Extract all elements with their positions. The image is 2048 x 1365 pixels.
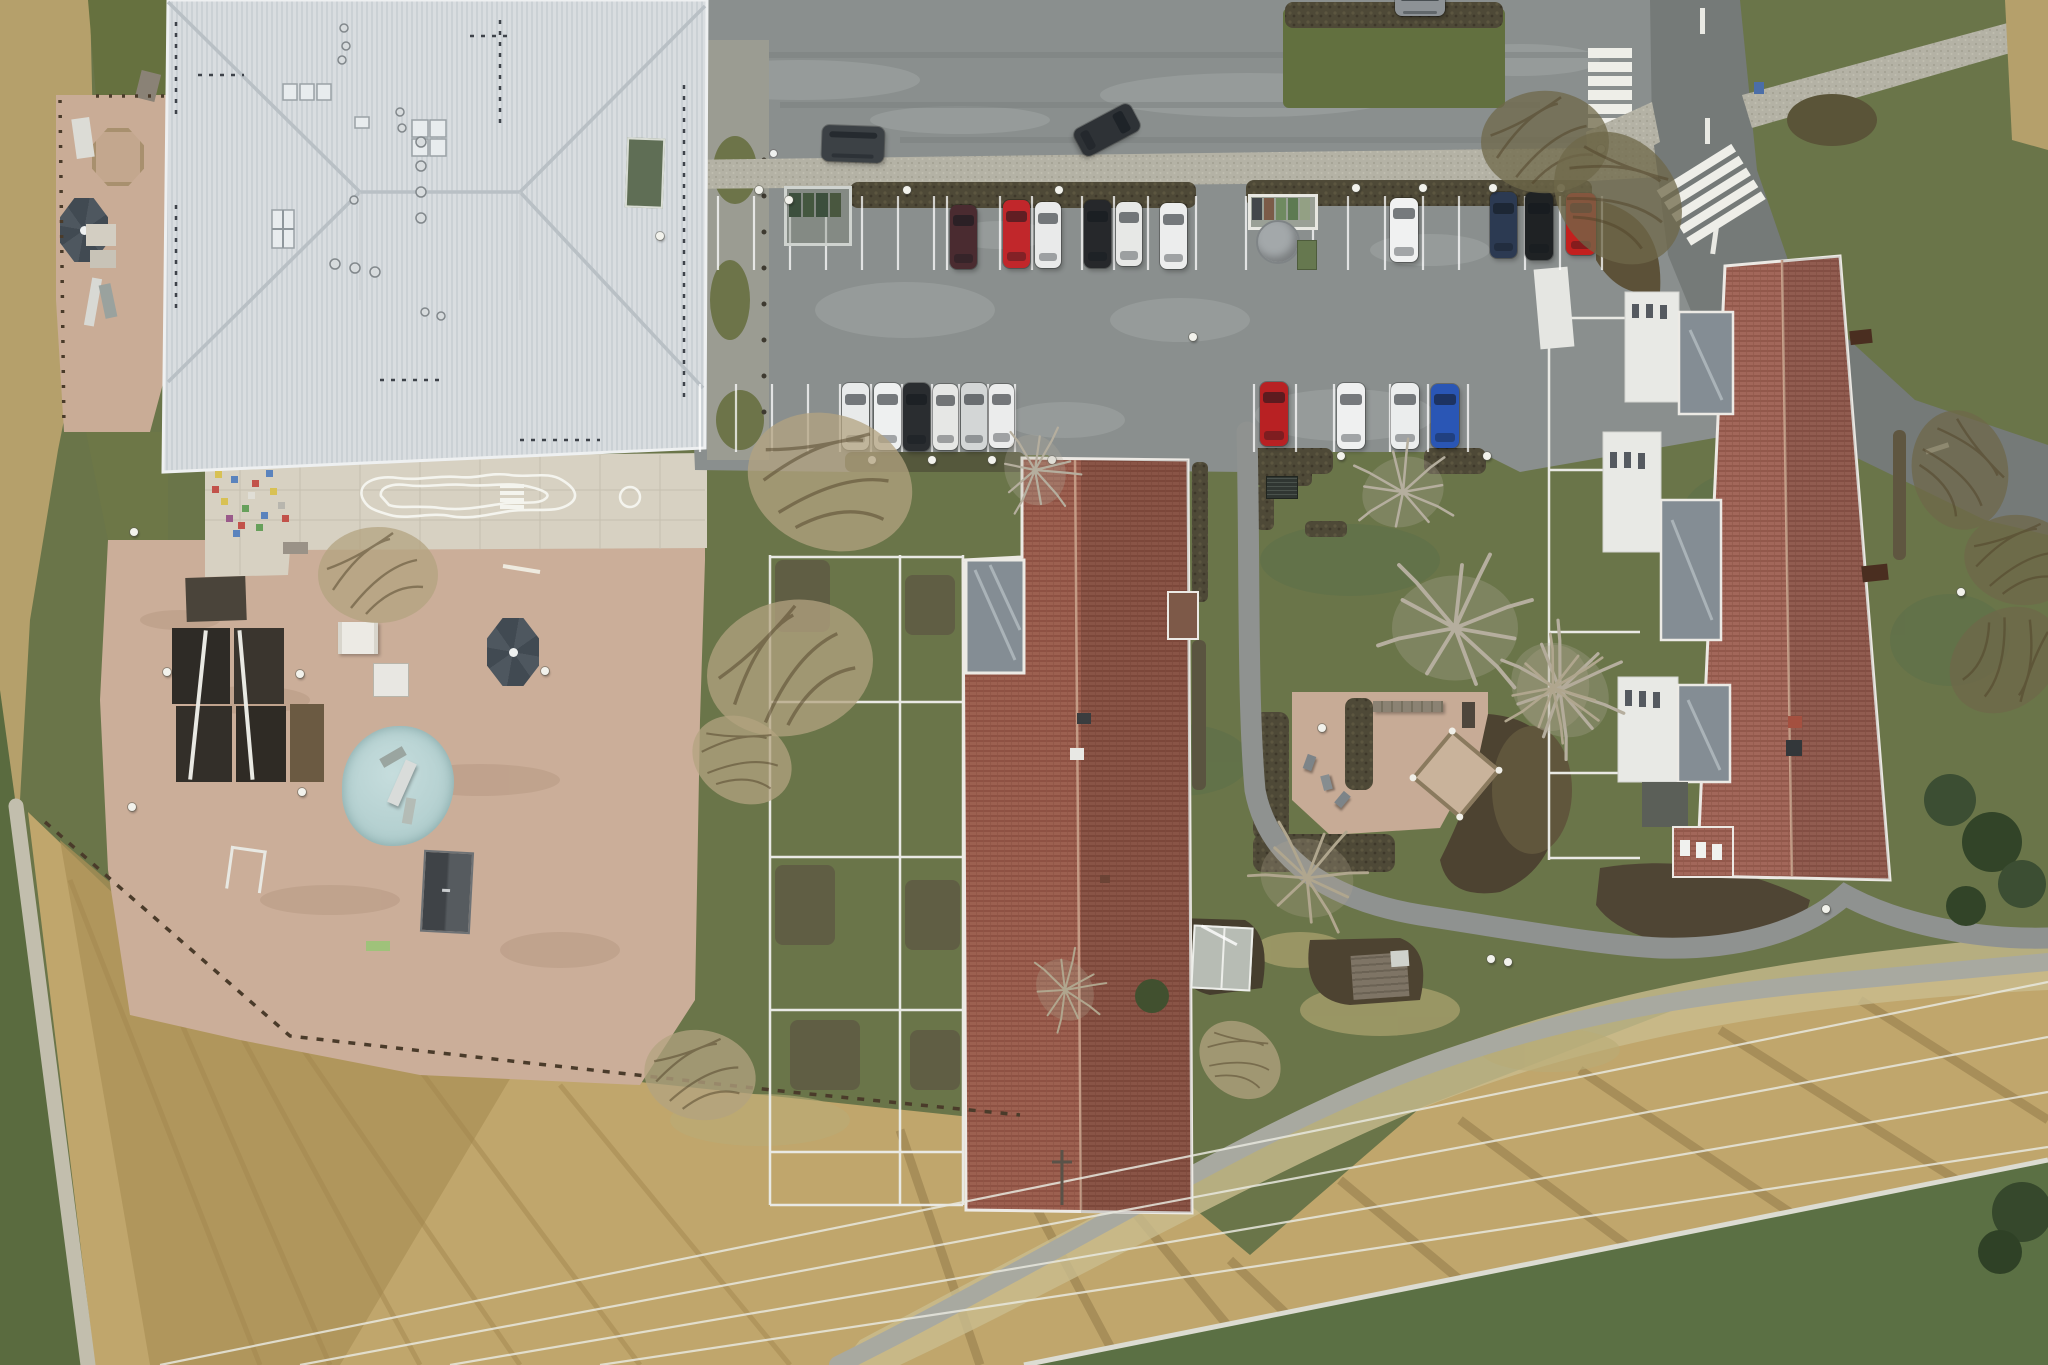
garden-bed-brown: [290, 704, 324, 782]
lamp-bollard: [928, 456, 936, 464]
lamp-bollard: [1957, 588, 1965, 596]
lamp-bollard: [128, 803, 136, 811]
parked-car: [874, 383, 901, 450]
parked-car: [1395, 0, 1445, 16]
lamp-bollard: [130, 528, 138, 536]
hex-sandbox: [92, 128, 144, 186]
bbq-grill: [1266, 476, 1298, 499]
splash-pond: [342, 726, 454, 846]
lamp-bollard: [868, 456, 876, 464]
parked-car: [961, 383, 987, 450]
slide-unit: [84, 274, 118, 334]
rocker-toy: [71, 117, 94, 159]
parked-car: [1116, 202, 1142, 266]
lamp-bollard: [1597, 145, 1605, 153]
parked-car: [1337, 383, 1365, 449]
lamp-bollard: [656, 232, 664, 240]
recycling-bin: [1264, 198, 1274, 220]
wheelie-bins: [789, 193, 841, 217]
parked-car: [1490, 192, 1517, 258]
lamp-bollard: [1483, 452, 1491, 460]
mosaic-tile: [270, 488, 277, 495]
lamp-bollard: [1487, 955, 1495, 963]
sandbox: [1411, 729, 1501, 819]
parked-car: [1160, 203, 1187, 269]
parked-car: [1525, 192, 1553, 260]
parked-car: [1003, 200, 1030, 268]
balance-beam: [1373, 701, 1443, 712]
parasol-large: [487, 618, 539, 686]
parked-car: [1431, 384, 1459, 448]
parked-car: [950, 205, 977, 269]
garden-bed-dark: [185, 576, 246, 622]
spring-rider: [1334, 791, 1351, 808]
mosaic-tile: [248, 492, 255, 499]
green-mat: [366, 941, 390, 951]
play-shed: [422, 852, 472, 932]
lamp-bollard: [1557, 184, 1565, 192]
recycling-bin: [1300, 198, 1310, 220]
electric-cabinet: [625, 137, 665, 208]
swing-frame: [225, 846, 267, 894]
lamp-bollard: [541, 667, 549, 675]
mosaic-tile: [215, 471, 222, 478]
parked-car: [821, 125, 884, 163]
kids-table: [86, 224, 116, 246]
lamp-bollard: [1055, 186, 1063, 194]
parked-car: [1391, 383, 1419, 449]
mosaic-tile: [231, 476, 238, 483]
parked-car: [1035, 202, 1061, 268]
mosaic-tile: [282, 515, 289, 522]
mosaic-tile: [233, 530, 240, 537]
lamp-bollard: [755, 186, 763, 194]
lamp-bollard: [1318, 724, 1326, 732]
picnic-table-white: [338, 622, 378, 654]
parked-car: [933, 384, 958, 450]
mosaic-tile: [226, 515, 233, 522]
parked-car: [903, 383, 930, 451]
wooden-deck: [1351, 952, 1410, 1000]
lamp-bollard: [1504, 958, 1512, 966]
bench-patio: [283, 542, 308, 554]
mosaic-tile: [261, 512, 268, 519]
recycling-bin: [1276, 198, 1286, 220]
lamp-bollard: [1822, 905, 1830, 913]
recycling-bins: [1252, 198, 1310, 220]
bench-north: [135, 70, 161, 102]
recycling-bin: [1288, 198, 1298, 220]
spring-rider: [1303, 754, 1317, 771]
playhouse-white: [374, 664, 408, 696]
lamp-bollard: [1352, 184, 1360, 192]
bench: [1462, 702, 1475, 728]
lamp-bollard: [1189, 333, 1197, 341]
greenhouse: [1190, 924, 1253, 991]
road-sign: [770, 150, 777, 157]
green-container: [1297, 240, 1317, 270]
mosaic-tile: [242, 505, 249, 512]
lamp-bollard: [296, 670, 304, 678]
mosaic-tile: [256, 524, 263, 531]
lamp-bollard: [298, 788, 306, 796]
lamp-bollard: [1337, 452, 1345, 460]
lamp-bollard: [785, 196, 793, 204]
lamp-bollard: [988, 456, 996, 464]
mosaic-tile: [238, 522, 245, 529]
lamp-bollard: [1489, 184, 1497, 192]
aerial-photo: Top-down aerial drone photo of a residen…: [0, 0, 2048, 1365]
parked-car: [1072, 102, 1143, 159]
garden-bed-dark: [176, 706, 232, 782]
lamp-bollard: [163, 668, 171, 676]
lamp-bollard: [1048, 456, 1056, 464]
recycling-bin: [1252, 198, 1262, 220]
garden-bed-dark: [236, 706, 286, 782]
lamp-bollard: [903, 186, 911, 194]
mosaic-tile: [212, 486, 219, 493]
kids-table: [90, 250, 116, 268]
parked-car: [989, 384, 1014, 448]
spring-rider: [1320, 774, 1333, 791]
objects-layer: [0, 0, 2048, 1365]
parked-car: [1566, 193, 1596, 255]
mosaic-tile: [278, 502, 285, 509]
mosaic-tile: [266, 470, 273, 477]
parked-car: [1390, 198, 1418, 262]
mosaic-tile: [252, 480, 259, 487]
covered-trailer: [1256, 220, 1300, 264]
parked-car: [1084, 200, 1111, 268]
parked-car: [1260, 382, 1288, 446]
lamp-bollard: [1419, 184, 1427, 192]
parked-car: [842, 383, 869, 450]
mosaic-tile: [221, 498, 228, 505]
